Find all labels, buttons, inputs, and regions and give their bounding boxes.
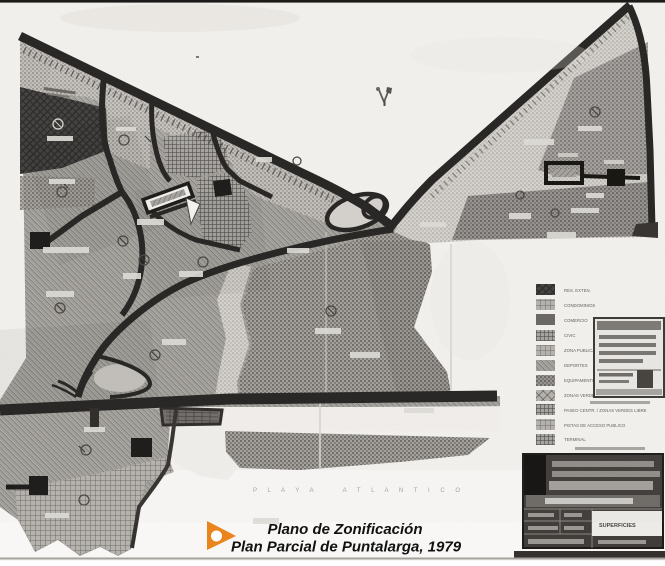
svg-text:SUPERFICIES: SUPERFICIES (599, 523, 636, 529)
svg-text:P L A Y A A T L A N T I C O: P L A Y A A T L A N T I C O (253, 488, 465, 494)
svg-text:Plan Parcial de Puntalarga, 19: Plan Parcial de Puntalarga, 1979 (231, 539, 462, 556)
svg-text:Plano de Zonificación: Plano de Zonificación (267, 521, 422, 538)
